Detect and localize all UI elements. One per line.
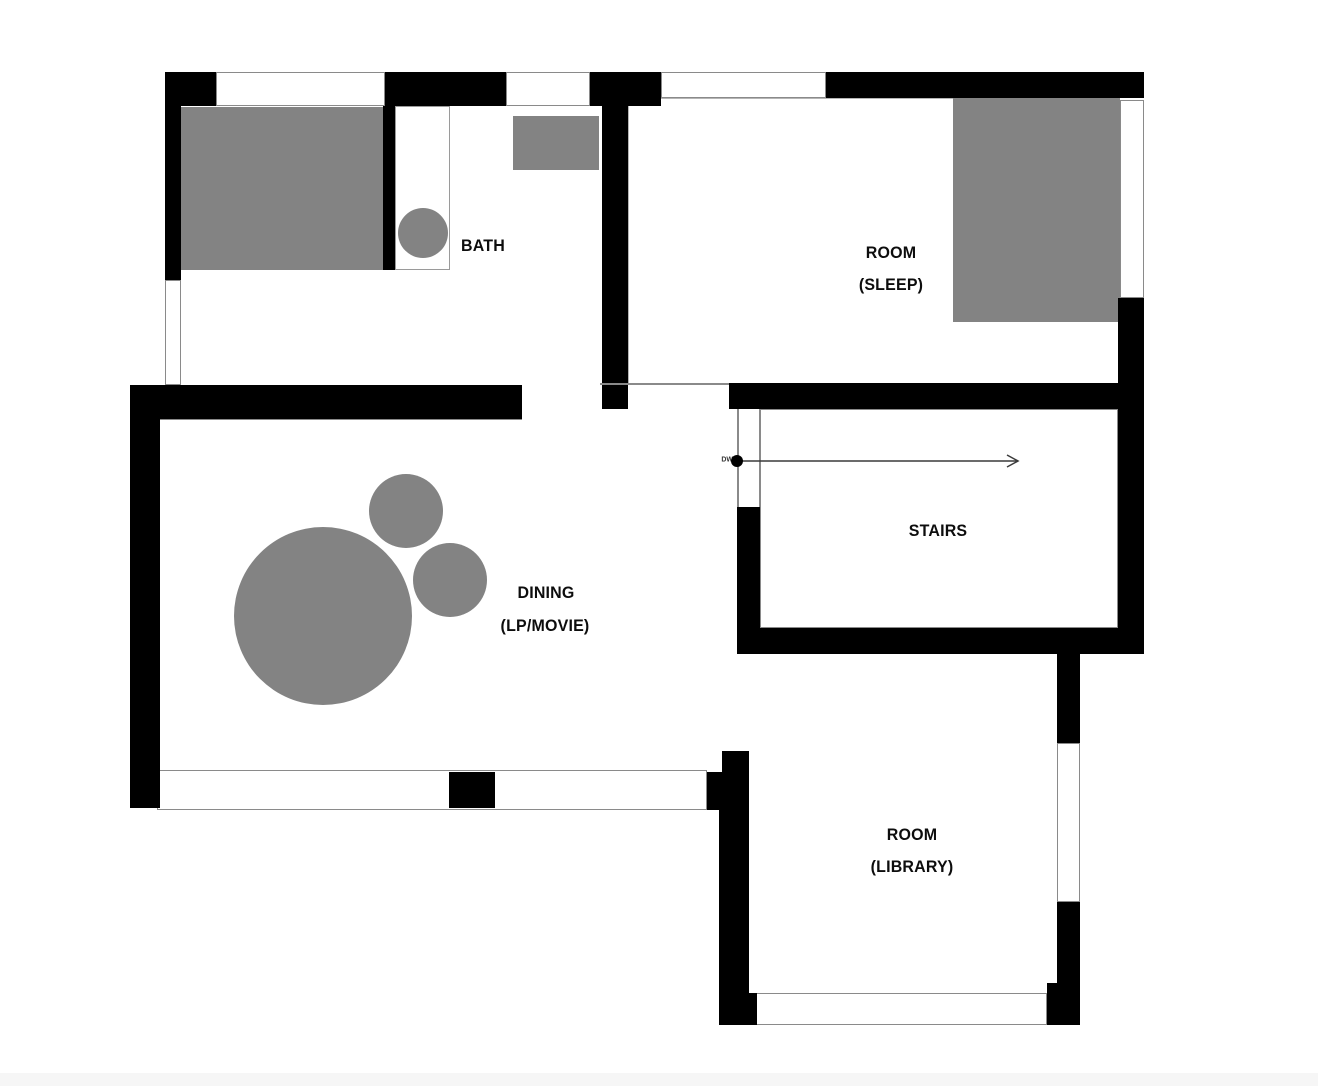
window-top-2 [506,72,590,106]
bath-furniture-rect [181,107,383,270]
dining-top-wall [130,385,522,419]
dining-bottom-corner [707,772,749,810]
dining-table-small-right [413,543,487,617]
library-left-wall-stub [722,751,749,774]
window-band-library-bottom [749,993,1047,1025]
stairs-door-jamb-right [759,409,761,507]
outer-wall-right [1118,298,1144,654]
room-sleep-label-line-1: ROOM [866,243,916,263]
dining-label-line-1: DINING [517,583,574,603]
dining-top-interior-line [160,419,522,420]
outer-wall-left-upper [165,106,181,280]
stairs-bottom-wall [737,628,1144,654]
window-library-right [1057,743,1080,902]
library-left-wall [719,810,749,1025]
bath-sink-circle [398,208,448,258]
bed-rect [953,98,1120,322]
library-bottom-left-corner [749,993,757,1025]
dw-label: DW [721,457,733,464]
dining-table-small-top [369,474,443,548]
sleep-room-left-wall [602,72,628,409]
stairs-interior-outline [760,409,1118,628]
stairs-label-line-1: STAIRS [909,521,968,541]
room-library-label-line-2: (LIBRARY) [871,857,954,877]
window-top-3 [661,72,826,98]
washer-rect [513,116,599,170]
window-band-dining-bottom [157,770,707,810]
dining-table-large [234,527,412,705]
window-left [165,280,181,385]
outer-wall-top-c [826,72,1144,98]
room-sleep-label-line-2: (SLEEP) [859,275,923,295]
floor-plan-canvas: BATHROOM(SLEEP)STAIRSDINING(LP/MOVIE)ROO… [0,0,1318,1086]
bottom-strip [0,1073,1318,1086]
outer-wall-top-a [385,72,506,106]
dining-left-wall [130,385,160,808]
doorway-header-line [600,383,729,385]
window-sleep-right [1120,100,1144,298]
window-top-1 [216,72,385,106]
bath-partition-wall [383,106,395,270]
room-library-label-line-1: ROOM [887,825,937,845]
library-right-wall-upper [1057,654,1080,743]
library-bottom-right-corner [1047,983,1080,1025]
dining-label-line-2: (LP/MOVIE) [501,616,590,636]
bath-label-line-1: BATH [461,236,505,256]
dining-bottom-mullion [449,772,495,808]
stairs-door-jamb-left [737,409,739,507]
sleep-room-bottom-wall [729,383,1144,409]
outer-wall-top-left-corner [165,72,216,106]
